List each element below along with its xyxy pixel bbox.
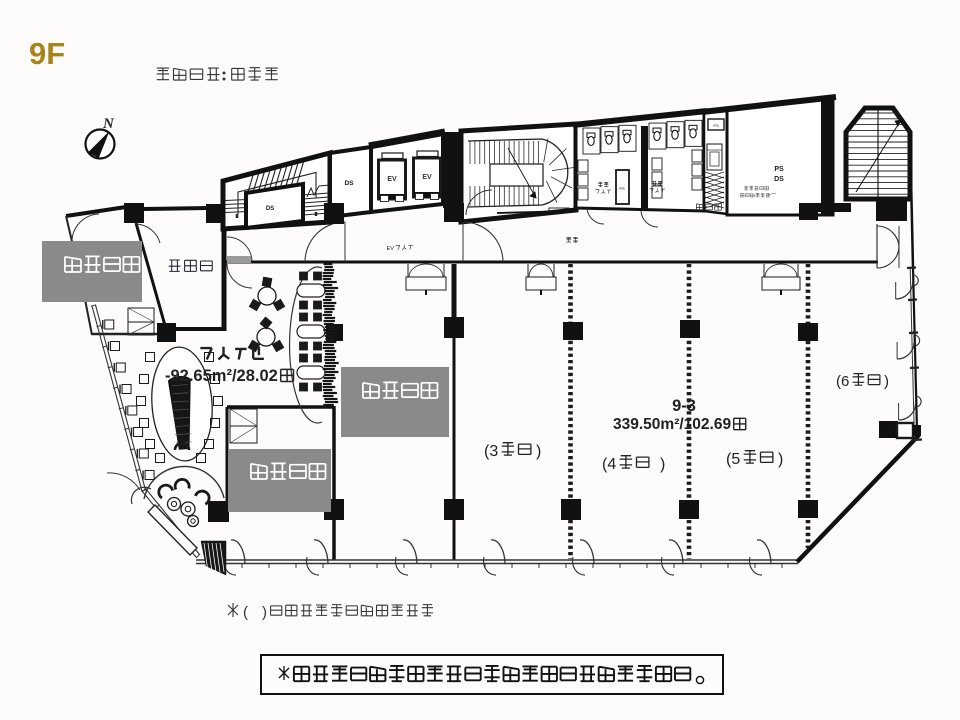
svg-text:(6: (6 <box>836 373 849 390</box>
svg-text:): ) <box>536 443 541 460</box>
svg-text:PS: PS <box>619 186 625 191</box>
svg-text:(4: (4 <box>602 456 616 473</box>
svg-text:): ) <box>262 604 267 621</box>
svg-text:9F: 9F <box>29 36 65 71</box>
svg-text:): ) <box>660 456 665 473</box>
svg-text:-92.65m²/28.02: -92.65m²/28.02 <box>165 367 278 385</box>
svg-text:DS: DS <box>266 206 274 212</box>
svg-text:N: N <box>102 116 115 132</box>
svg-text:(5: (5 <box>726 451 740 468</box>
svg-text:): ) <box>884 373 889 390</box>
svg-text:PS: PS <box>774 166 784 173</box>
svg-text:339.50m²/102.69: 339.50m²/102.69 <box>613 416 731 433</box>
svg-text:DS: DS <box>774 176 784 183</box>
svg-text:): ) <box>778 451 783 468</box>
svg-text:(3: (3 <box>484 443 498 460</box>
svg-text:9-3: 9-3 <box>672 397 696 415</box>
svg-text:(: ( <box>243 604 248 621</box>
svg-text:EV: EV <box>387 246 395 252</box>
svg-text:DS: DS <box>344 180 354 187</box>
svg-text:PS: PS <box>713 123 719 128</box>
svg-text:EV: EV <box>422 174 432 181</box>
svg-text:EV: EV <box>387 176 397 183</box>
